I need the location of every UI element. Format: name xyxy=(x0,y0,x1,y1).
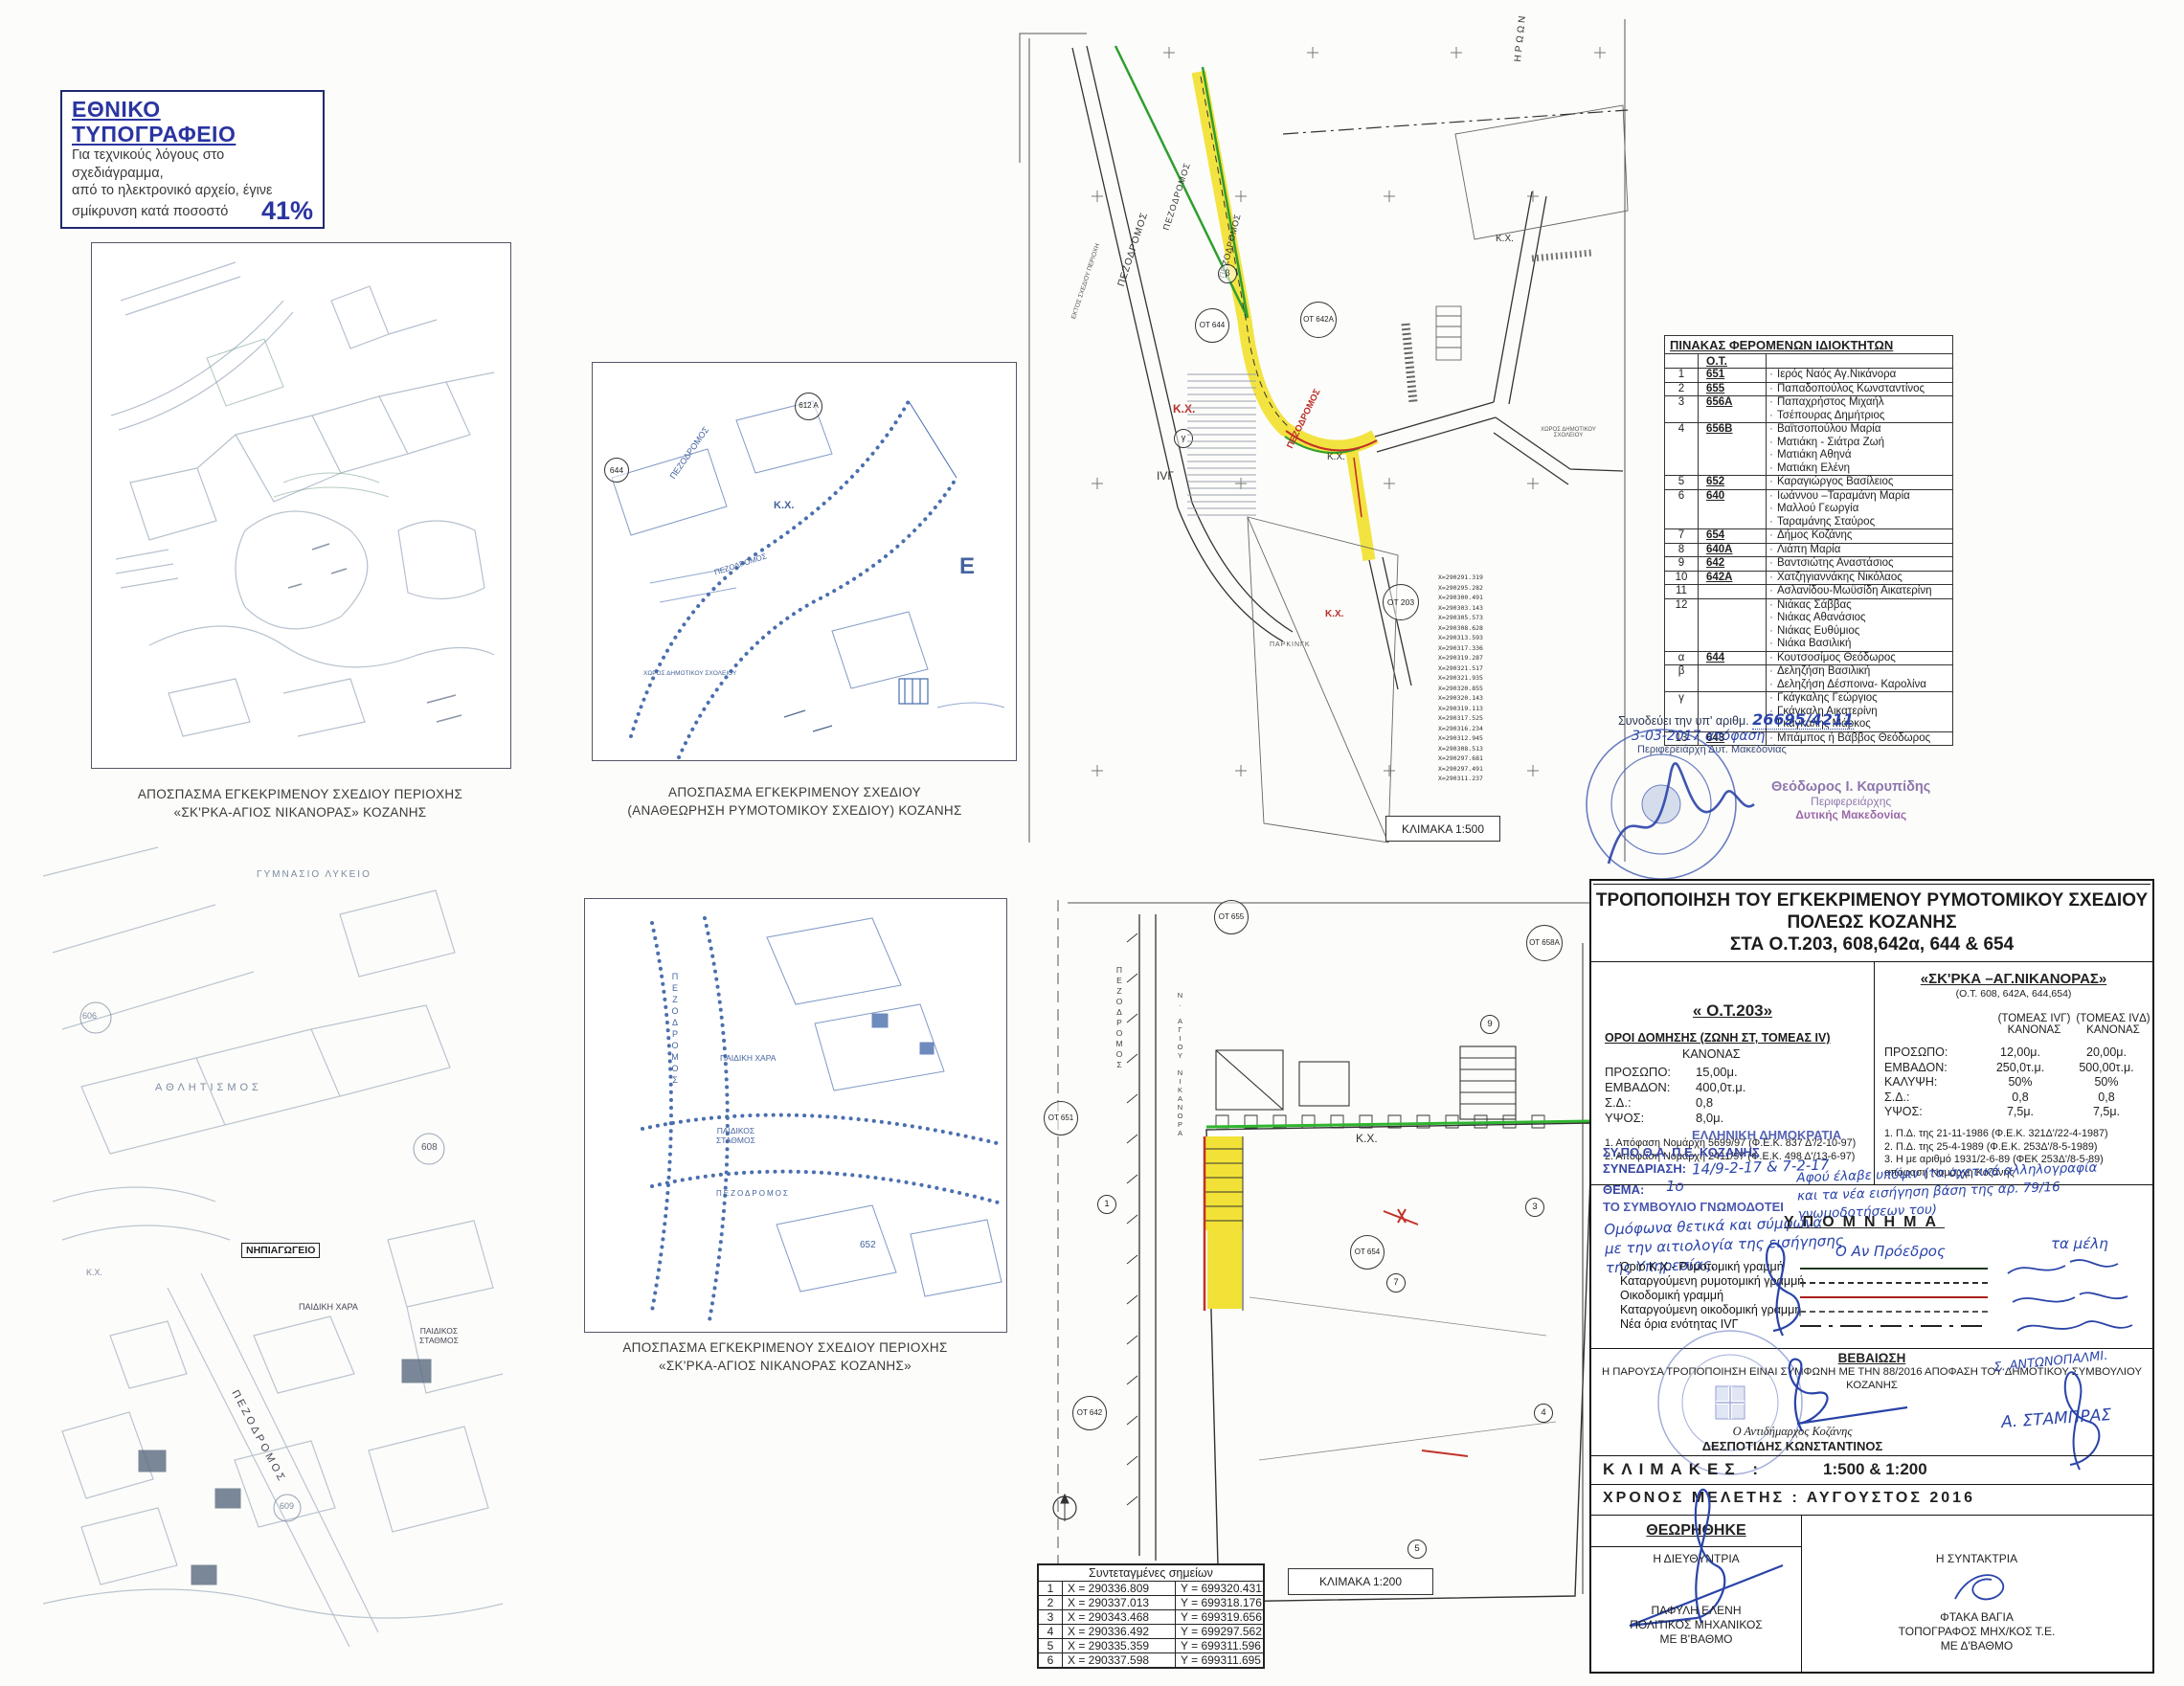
point-label-1: 1 xyxy=(1097,1195,1116,1214)
term-value-ivg: 50% xyxy=(1972,1075,2068,1090)
governor-signature xyxy=(1609,763,1754,864)
coord-x-value: X = 290337.598 xyxy=(1063,1653,1176,1667)
map-e-sketch xyxy=(585,899,1006,1332)
owner-row-name: Βαντσιώτης Αναστάσιος xyxy=(1767,557,1952,571)
printing-office-line3: σμίκρυνση κατά ποσοστό xyxy=(72,203,228,221)
col-ivg-a: (ΤΟΜΕΑΣ IVΓ) xyxy=(1998,1013,2071,1024)
col-ivd-b: ΚΑΝΟΝΑΣ xyxy=(2086,1024,2140,1036)
owner-row-num: γ xyxy=(1665,692,1699,706)
deputy-mayor-title: Ο Αντιδήμαρχος Κοζάνης xyxy=(1591,1425,1993,1439)
owner-row-ot xyxy=(1699,612,1767,625)
owner-row-ot: 651 xyxy=(1699,369,1767,382)
table-row: Νιάκας Ευθύμιος xyxy=(1665,625,1952,639)
survey-x-entry: X=290319.113 xyxy=(1438,704,1483,714)
point-label-7: 7 xyxy=(1386,1273,1406,1293)
coord-x-value: X = 290336.492 xyxy=(1063,1625,1176,1638)
owner-row-ot: 655 xyxy=(1699,383,1767,396)
table-row: 3 X = 290343.468 Y = 699319.656 xyxy=(1039,1609,1263,1624)
ot203-heading: « Ο.Τ.203» xyxy=(1591,1001,1874,1021)
owners-table-title: ΠΙΝΑΚΑΣ ΦΕΡΟΜΕΝΩΝ ΙΔΙΟΚΤΗΤΩΝ xyxy=(1665,336,1952,353)
block-label-644: 644 xyxy=(604,458,629,483)
survey-x-entry: X=290297.681 xyxy=(1438,753,1483,764)
title-line1: ΤΡΟΠΟΠΟΙΗΣΗ ΤΟΥ ΕΓΚΕΚΡΙΜΕΝΟΥ ΡΥΜΟΤΟΜΙΚΟΥ… xyxy=(1591,890,2152,911)
term-value-ivd: 0,8 xyxy=(2068,1090,2145,1106)
table-row: 4 656Β Βαϊτσοπούλου Μαρία xyxy=(1665,422,1952,437)
caption-map-e: ΑΠΟΣΠΑΣΜΑ ΕΓΚΕΚΡΙΜΕΝΟΥ ΣΧΕΔΙΟΥ ΠΕΡΙΟΧΗΣ … xyxy=(555,1338,1015,1375)
scale-box-1200: ΚΛΙΜΑΚΑ 1:200 xyxy=(1288,1568,1433,1595)
table-row: γ Γκάγκαλης Γεώργιος xyxy=(1665,691,1952,706)
table-row: Νιάκας Αθανάσιος xyxy=(1665,612,1952,625)
owner-row-name: Ταραμάνης Σταύρος xyxy=(1767,516,1952,529)
owner-row-ot xyxy=(1699,692,1767,706)
terms-row: ΚΑΛΥΨΗ: 50% 50% xyxy=(1884,1075,2150,1090)
coord-y-value: Y = 699297.562 xyxy=(1176,1625,1263,1638)
map-excerpt-e xyxy=(584,898,1007,1333)
ot642a-text: ΟΤ 642Α xyxy=(1303,316,1334,324)
point-label-9: 9 xyxy=(1480,1015,1499,1034)
right-note-line: 2. Π.Δ. της 25-4-1989 (Φ.Ε.Κ. 253Δ'/8-5-… xyxy=(1884,1141,2145,1155)
owner-row-name: Ματιάκη Αθηνά xyxy=(1767,449,1952,462)
map-survey-1500 xyxy=(996,19,1647,862)
table-row: α 644 Κουτσοσίμος Θεόδωρος xyxy=(1665,651,1952,665)
ot203-heading-text: « Ο.Τ.203» xyxy=(1693,1001,1772,1020)
table-row: β Δεληζήση Βασιλική xyxy=(1665,664,1952,679)
kx-label-red: Κ.Χ. xyxy=(1325,609,1343,619)
table-row: 2 X = 290337.013 Y = 699318.176 xyxy=(1039,1595,1263,1609)
term-key: ΠΡΟΣΩΠΟ: xyxy=(1884,1045,1972,1061)
map-b-sketch xyxy=(593,363,1016,760)
governor-stamp-text: Θεόδωρος Ι. Καρυπίδης Περιφερειάρχης Δυτ… xyxy=(1771,779,1930,821)
survey-x-entry: X=290319.287 xyxy=(1438,653,1483,663)
sector-e-label: Ε xyxy=(959,553,975,580)
map-excerpt-b xyxy=(592,362,1017,761)
regional-round-stamp xyxy=(1580,720,1762,888)
legend-line-sample xyxy=(1800,1268,1988,1272)
owner-row-ot xyxy=(1699,625,1767,639)
owner-row-num xyxy=(1665,449,1699,462)
owner-row-ot: 642Α xyxy=(1699,572,1767,585)
gym-label: ΓΥΜΝΑΣΙΟ ΛΥΚΕΙΟ xyxy=(257,869,372,880)
table-row: 2 655 Παπαδοπούλος Κωνσταντίνος xyxy=(1665,382,1952,396)
members-signatures xyxy=(1998,1254,2142,1345)
map-a-sketch xyxy=(92,243,510,768)
point-3-text: 3 xyxy=(1532,1203,1537,1212)
street-label-agiou-nikanora: Ν. ΑΓΙΟΥ ΝΙΚΑΝΟΡΑ xyxy=(1176,991,1184,1168)
member-signature-squiggle xyxy=(2037,1364,2123,1474)
col-ivd-a: (ΤΟΜΕΑΣ IVΔ) xyxy=(2076,1013,2150,1024)
survey-x-entry: X=290308.628 xyxy=(1438,623,1483,634)
survey-x-entry: X=290320.143 xyxy=(1438,693,1483,704)
coordinates-table-body: 1 X = 290336.809 Y = 699320.431 2 X = 29… xyxy=(1039,1582,1263,1667)
point-4-text: 4 xyxy=(1541,1408,1545,1418)
owners-table-header: Ο.Τ. xyxy=(1665,353,1952,368)
owner-row-name: Δεληζήση Βασιλική xyxy=(1767,665,1952,679)
term-value-ivd: 50% xyxy=(2068,1075,2145,1090)
owner-row-name: Δεληζήση Δέσποινα- Καρολίνα xyxy=(1767,679,1952,692)
point-label-5: 5 xyxy=(1407,1540,1427,1559)
owner-row-num xyxy=(1665,516,1699,529)
owner-row-num: 9 xyxy=(1665,557,1699,571)
kx-label: Κ.Χ. xyxy=(1327,452,1345,462)
legend-line-sample xyxy=(1800,1311,1988,1315)
term-value: 400,0τ.μ. xyxy=(1696,1080,1745,1095)
owner-row-ot xyxy=(1699,585,1767,598)
author-title2: ΜΕ Δ'ΒΑΘΜΟ xyxy=(1801,1639,2152,1652)
chairman-handwritten: Ο Αν Πρόεδρος xyxy=(1835,1243,1946,1260)
owner-row-name: Γκάγκαλης Γεώργιος xyxy=(1767,692,1952,706)
street-label-pezodromos-vertical: ΠΕΖΟΔΡΟΜΟΣ xyxy=(670,972,680,1139)
coordinates-table-title: Συντεταγμένες σημείων xyxy=(1039,1565,1263,1582)
daycare-line1: ΠΑΙΔΙΚΟΣ xyxy=(419,1326,459,1336)
author-name: ΦΤΑΚΑ ΒΑΓΙΑ xyxy=(1801,1610,2152,1624)
kx-label-d: Κ.Χ. xyxy=(86,1268,102,1277)
owner-row-name: Χατζηγιαννάκης Νικόλαος xyxy=(1767,572,1952,585)
illegible-coordinate-list xyxy=(1187,373,1256,517)
map-survey-1200 xyxy=(1010,886,1609,1642)
term-key: ΚΑΛΥΨΗ: xyxy=(1884,1075,1972,1090)
table-row: 4 X = 290336.492 Y = 699297.562 xyxy=(1039,1624,1263,1638)
block-label-ot658a: ΟΤ 658Α xyxy=(1526,925,1563,961)
point-9-text: 9 xyxy=(1487,1020,1492,1029)
survey-x-entry: X=290312.945 xyxy=(1438,733,1483,744)
governor-region: Δυτικής Μακεδονίας xyxy=(1771,808,1930,821)
right-terms-rows: ΠΡΟΣΩΠΟ: 12,00μ. 20,00μ. ΕΜΒΑΔΟΝ: 250,0τ… xyxy=(1884,1045,2150,1120)
beta-text: β xyxy=(1225,269,1229,278)
ot644-text: ΟΤ 644 xyxy=(1200,322,1226,329)
owners-header-name xyxy=(1767,354,1952,368)
reduction-percent: 41% xyxy=(261,200,313,221)
scales-label: ΚΛΙΜΑΚΕΣ : xyxy=(1603,1460,1765,1479)
owner-row-num: 11 xyxy=(1665,585,1699,598)
daycare-label: ΠΑΙΔΙΚΟΣ ΣΤΑΘΜΟΣ xyxy=(419,1326,459,1345)
terms-row: Σ.Δ.: 0,8 xyxy=(1605,1095,1854,1111)
term-key: Σ.Δ.: xyxy=(1605,1095,1696,1111)
survey-x-entry: X=290317.336 xyxy=(1438,643,1483,654)
title-line2: ΠΟΛΕΩΣ ΚΟΖΑΝΗΣ xyxy=(1591,912,2152,933)
table-row: 12 Νιάκας Σάββας xyxy=(1665,598,1952,613)
table-row: Ματιάκη Ελένη xyxy=(1665,462,1952,476)
survey-x-entry: X=290303.143 xyxy=(1438,603,1483,614)
theme-label: ΘΕΜΑ: xyxy=(1603,1182,1644,1197)
table-row: 5 652 Καραγιώργος Βασίλειος xyxy=(1665,475,1952,489)
owner-row-name: Κουτσοσίμος Θεόδωρος xyxy=(1767,652,1952,665)
playground-label-e: ΠΑΙΔΙΚΗ ΧΑΡΑ xyxy=(720,1053,776,1063)
left-terms-rows: ΠΡΟΣΩΠΟ: 15,00μ. ΕΜΒΑΔΟΝ: 400,0τ.μ. Σ.Δ.… xyxy=(1605,1065,1854,1126)
owner-row-ot xyxy=(1699,665,1767,679)
terms-row: ΠΡΟΣΩΠΟ: 12,00μ. 20,00μ. xyxy=(1884,1045,2150,1061)
kx-label: Κ.Χ. xyxy=(1496,234,1514,244)
coord-y-value: Y = 699311.596 xyxy=(1176,1639,1263,1652)
daycare-line2: ΣΤΑΘΜΟΣ xyxy=(419,1336,459,1345)
point-5-text: 5 xyxy=(1414,1544,1419,1554)
survey-x-entry: X=290321.517 xyxy=(1438,663,1483,674)
owner-row-ot: 656Β xyxy=(1699,423,1767,437)
title-block-double-border xyxy=(1593,884,2150,885)
survey-x-entry: X=290317.525 xyxy=(1438,713,1483,724)
school-area-line2: ΔΗΜΟΤΙΚΟΥ ΣΧΟΛΕΙΟΥ xyxy=(666,670,736,677)
terms-row: ΥΨΟΣ: 8,0μ. xyxy=(1605,1111,1854,1126)
coord-y-value: Y = 699320.431 xyxy=(1176,1582,1263,1595)
owner-row-ot xyxy=(1699,599,1767,613)
coord-y-value: Y = 699311.695 xyxy=(1176,1653,1263,1667)
table-row: Νιάκα Βασιλική xyxy=(1665,638,1952,651)
owner-row-name: Νιάκα Βασιλική xyxy=(1767,638,1952,651)
skrka-subheading: (Ο.Τ. 608, 642Α, 644,654) xyxy=(1875,988,2152,1000)
table-row: Ταραμάνης Σταύρος xyxy=(1665,516,1952,529)
caption-map-e-line1: ΑΠΟΣΠΑΣΜΑ ΕΓΚΕΚΡΙΜΕΝΟΥ ΣΧΕΔΙΟΥ ΠΕΡΙΟΧΗΣ xyxy=(555,1338,1015,1357)
term-value-ivd: 20,00μ. xyxy=(2068,1045,2145,1061)
block-609-label: 609 xyxy=(280,1501,294,1511)
owner-row-ot: 642 xyxy=(1699,557,1767,571)
caption-map-b: ΑΠΟΣΠΑΣΜΑ ΕΓΚΕΚΡΙΜΕΝΟΥ ΣΧΕΔΙΟΥ (ΑΝΑΘΕΩΡΗ… xyxy=(570,783,1020,820)
block-652-label: 652 xyxy=(860,1240,876,1250)
term-value-ivd: 500,00τ.μ. xyxy=(2068,1061,2145,1076)
owner-row-ot xyxy=(1699,449,1767,462)
owner-row-ot xyxy=(1699,638,1767,651)
table-row: Τσέπουρας Δημήτριος xyxy=(1665,410,1952,423)
block-644-text: 644 xyxy=(610,466,623,475)
coord-point-number: 4 xyxy=(1039,1625,1063,1638)
block-612a-text: 612 Α xyxy=(799,402,818,410)
street-label-pezodromos: ΠΕΖΟΔΡΟΜΟΣ xyxy=(716,1189,790,1198)
owner-row-num xyxy=(1665,625,1699,639)
approval-number-handwritten: 26695/4211 xyxy=(1752,710,1854,730)
owner-row-num: 6 xyxy=(1665,490,1699,504)
owner-row-ot xyxy=(1699,437,1767,450)
block-label-ot651: ΟΤ 651 xyxy=(1044,1101,1078,1135)
table-row: 10 642Α Χατζηγιαννάκης Νικόλαος xyxy=(1665,571,1952,585)
block-label-ot642a: ΟΤ 642Α xyxy=(1300,302,1337,338)
owner-row-num xyxy=(1665,612,1699,625)
owner-row-num: 8 xyxy=(1665,544,1699,557)
block-606-label: 606 xyxy=(82,1011,97,1021)
right-note-line: 1. Π.Δ. της 21-11-1986 (Φ.Ε.Κ. 321Δ'/22-… xyxy=(1884,1128,2145,1141)
scales-value: 1:500 & 1:200 xyxy=(1823,1460,1927,1479)
term-value-ivd: 7,5μ. xyxy=(2068,1105,2145,1120)
council-opinion-stamp: ΤΟ ΣΥΜΒΟΥΛΙΟ ΓΝΩΜΟΔΟΤΕΙ xyxy=(1603,1200,1784,1214)
owner-row-num: α xyxy=(1665,652,1699,665)
owner-row-name: Νιάκας Αθανάσιος xyxy=(1767,612,1952,625)
ot651-text: ΟΤ 651 xyxy=(1048,1114,1074,1122)
terms-row: ΕΜΒΑΔΟΝ: 400,0τ.μ. xyxy=(1605,1080,1854,1095)
owner-row-name: Τσέπουρας Δημήτριος xyxy=(1767,410,1952,423)
owner-row-ot xyxy=(1699,503,1767,516)
caption-map-a-line1: ΑΠΟΣΠΑΣΜΑ ΕΓΚΕΚΡΙΜΕΝΟΥ ΣΧΕΔΙΟΥ ΠΕΡΙΟΧΗΣ xyxy=(91,785,509,803)
skrka-heading-text: «ΣΚ'ΡΚΑ –ΑΓ.ΝΙΚΑΝΟΡΑΣ» xyxy=(1921,971,2107,987)
point-1-text: 1 xyxy=(1104,1200,1109,1209)
school-area-c-line2: ΔΗΜΟΤΙΚΟΥ ΣΧΟΛΕΙΟΥ xyxy=(1554,427,1596,438)
col-ivg-b: ΚΑΝΟΝΑΣ xyxy=(2008,1024,2061,1036)
term-value: 15,00μ. xyxy=(1696,1065,1738,1080)
owner-row-ot xyxy=(1699,410,1767,423)
divider xyxy=(1591,961,2152,962)
owner-row-name: Νιάκας Σάββας xyxy=(1767,599,1952,613)
director-name: ΠΑΦΥΛΗ ΕΛΕΝΗ xyxy=(1591,1604,1801,1617)
table-row: 6 640 Ιωάννου –Ταραμάνη Μαρία xyxy=(1665,489,1952,504)
caption-map-a: ΑΠΟΣΠΑΣΜΑ ΕΓΚΕΚΡΙΜΕΝΟΥ ΣΧΕΔΙΟΥ ΠΕΡΙΟΧΗΣ … xyxy=(91,785,509,821)
owner-row-num: 7 xyxy=(1665,529,1699,543)
table-row: Δεληζήση Δέσποινα- Καρολίνα xyxy=(1665,679,1952,692)
terms-row: ΕΜΒΑΔΟΝ: 250,0τ.μ. 500,00τ.μ. xyxy=(1884,1061,2150,1076)
table-row: 9 642 Βαντσιώτης Αναστάσιος xyxy=(1665,556,1952,571)
legend-title-text: ΥΠΟΜΝΗΜΑ xyxy=(1784,1214,1945,1230)
survey-x-entry: X=290295.282 xyxy=(1438,583,1483,594)
owner-row-ot: 640 xyxy=(1699,490,1767,504)
block-label-ot203: ΟΤ 203 xyxy=(1383,584,1419,620)
point-label-3: 3 xyxy=(1525,1198,1544,1217)
owner-row-ot: 640Α xyxy=(1699,544,1767,557)
owner-row-num: 12 xyxy=(1665,599,1699,613)
owner-row-name: Ασλανίδου-Μωϋσίδη Αικατερίνη xyxy=(1767,585,1952,598)
parking-label: ΠΑΡΚΙΝΓΚ xyxy=(1270,641,1311,648)
coord-point-number: 3 xyxy=(1039,1610,1063,1624)
scale-1500-text: ΚΛΙΜΑΚΑ 1:500 xyxy=(1402,822,1484,836)
caption-map-a-line2: «ΣΚ'ΡΚΑ-ΑΓΙΟΣ ΝΙΚΑΝΟΡΑΣ» ΚΟΖΑΝΗΣ xyxy=(91,803,509,821)
table-row: 5 X = 290335.359 Y = 699311.596 xyxy=(1039,1638,1263,1652)
term-value: 0,8 xyxy=(1696,1095,1713,1111)
table-row: 11 Ασλανίδου-Μωϋσίδη Αικατερίνη xyxy=(1665,584,1952,598)
daycare-e-line1: ΠΑΙΔΙΚΟΣ xyxy=(716,1126,755,1135)
survey-x-entry: X=290320.855 xyxy=(1438,684,1483,694)
owner-row-num: β xyxy=(1665,665,1699,679)
coord-x-value: X = 290336.809 xyxy=(1063,1582,1176,1595)
point-7-text: 7 xyxy=(1393,1278,1398,1288)
survey-x-entry: X=290313.593 xyxy=(1438,633,1483,643)
sports-label: ΑΘΛΗΤΙΣΜΟΣ xyxy=(155,1082,262,1093)
terms-row: ΠΡΟΣΩΠΟ: 15,00μ. xyxy=(1605,1065,1854,1080)
survey-x-entry: X=290300.491 xyxy=(1438,593,1483,603)
governor-role: Περιφερειάρχης xyxy=(1771,795,1930,808)
table-row: 1 651 Ιερός Ναός Αγ.Νικάνορα xyxy=(1665,368,1952,382)
survey-x-entry: X=290297.491 xyxy=(1438,764,1483,775)
table-row: 8 640Α Λιάπη Μαρία xyxy=(1665,543,1952,557)
owner-row-num: 1 xyxy=(1665,369,1699,382)
left-kanonas: ΚΑΝΟΝΑΣ xyxy=(1682,1047,1741,1061)
legend-line-sample xyxy=(1800,1282,1988,1287)
col-ivg-header: (ΤΟΜΕΑΣ IVΓ)ΚΑΝΟΝΑΣ xyxy=(1993,1013,2075,1036)
table-row: 1 X = 290336.809 Y = 699320.431 xyxy=(1039,1582,1263,1595)
survey-x-entry: X=290311.237 xyxy=(1438,774,1483,784)
block-label-ot655: ΟΤ 655 xyxy=(1214,900,1249,934)
table-row: Ματιάκη - Σιάτρα Ζωή xyxy=(1665,437,1952,450)
owner-row-ot: 644 xyxy=(1699,652,1767,665)
coord-x-value: X = 290337.013 xyxy=(1063,1596,1176,1609)
owner-row-num: 3 xyxy=(1665,396,1699,410)
survey-x-entry: X=290305.573 xyxy=(1438,613,1483,623)
ot655-text: ΟΤ 655 xyxy=(1219,913,1245,921)
school-area-line1: ΧΩΡΟΣ xyxy=(643,670,665,677)
sypotha-agency: ΣΥ.ΠΟ.Θ.Α. Π.Ε. ΚΟΖΑΝΗΣ xyxy=(1603,1145,1760,1159)
owner-row-num xyxy=(1665,437,1699,450)
survey-x-entry: X=290291.319 xyxy=(1438,573,1483,583)
block-label-ot644: ΟΤ 644 xyxy=(1195,308,1229,343)
term-key: ΕΜΒΑΔΟΝ: xyxy=(1605,1080,1696,1095)
approval-note-area: Συνοδεύει την υπ' αριθμ. 26695/4211 3-03… xyxy=(1618,710,2001,883)
owner-row-ot: 656Α xyxy=(1699,396,1767,410)
printing-office-title: ΕΘΝΙΚΟ ΤΥΠΟΓΡΑΦΕΙΟ xyxy=(72,97,313,146)
owner-row-num xyxy=(1665,679,1699,692)
deputy-mayor-name: ΔΕΣΠΟΤΙΔΗΣ ΚΩΝΣΤΑΝΤΙΝΟΣ xyxy=(1591,1439,1993,1453)
playground-label: ΠΑΙΔΙΚΗ ΧΑΡΑ xyxy=(299,1302,358,1312)
table-row: 3 656Α Παπαχρήστος Μιχαήλ xyxy=(1665,395,1952,410)
term-value-ivg: 7,5μ. xyxy=(1972,1105,2068,1120)
owner-row-num: 10 xyxy=(1665,572,1699,585)
divider xyxy=(1591,1455,2152,1456)
owner-row-name: Παπαχρήστος Μιχαήλ xyxy=(1767,396,1952,410)
scale-1200-text: ΚΛΙΜΑΚΑ 1:200 xyxy=(1319,1575,1402,1588)
terms-row: ΥΨΟΣ: 7,5μ. 7,5μ. xyxy=(1884,1105,2150,1120)
printing-office-line1: Για τεχνικούς λόγους στο σχεδιάγραμμα, xyxy=(72,146,313,182)
sector-ivg-label: IVΓ xyxy=(1157,469,1174,483)
owner-row-name: Λιάπη Μαρία xyxy=(1767,544,1952,557)
street-label-pezodromos-vertical-f: ΠΕΖΟΔΡΟΜΟΣ xyxy=(1115,965,1124,1123)
governor-name: Θεόδωρος Ι. Καρυπίδης xyxy=(1771,779,1930,795)
coord-x-value: X = 290343.468 xyxy=(1063,1610,1176,1624)
coord-point-number: 2 xyxy=(1039,1596,1063,1609)
terms-row: Σ.Δ.: 0,8 0,8 xyxy=(1884,1090,2150,1106)
point-label-4: 4 xyxy=(1534,1404,1553,1423)
gamma-text: γ xyxy=(1182,434,1186,442)
block-label-612a: 612 Α xyxy=(795,393,822,420)
printing-office-stamp: ΕΘΝΙΚΟ ΤΥΠΟΓΡΑΦΕΙΟ Για τεχνικούς λόγους … xyxy=(60,90,325,229)
ot654-text: ΟΤ 654 xyxy=(1355,1248,1381,1256)
school-area-label-c: ΧΩΡΟΣ ΔΗΜΟΤΙΚΟΥ ΣΧΟΛΕΙΟΥ xyxy=(1538,427,1599,438)
legend-line-sample xyxy=(1800,1296,1988,1301)
theme-value-handwritten: 1ο xyxy=(1666,1178,1684,1195)
block-label-ot642: ΟΤ 642 xyxy=(1072,1396,1107,1430)
owner-row-name: Ματιάκη Ελένη xyxy=(1767,462,1952,476)
title-block: ΤΡΟΠΟΠΟΙΗΣΗ ΤΟΥ ΕΓΚΕΚΡΙΜΕΝΟΥ ΡΥΜΟΤΟΜΙΚΟΥ… xyxy=(1589,879,2154,1674)
coord-y-value: Y = 699318.176 xyxy=(1176,1596,1263,1609)
table-row: 7 654 Δήμος Κοζάνης xyxy=(1665,528,1952,543)
term-key: ΥΨΟΣ: xyxy=(1605,1111,1696,1126)
owner-row-name: Ιωάννου –Ταραμάνη Μαρία xyxy=(1767,490,1952,504)
hellenic-republic-stamp: ΕΛΛΗΝΙΚΗ ΔΗΜΟΚΡΑΤΙΑ xyxy=(1692,1128,1841,1142)
survey-x-entry: X=290321.935 xyxy=(1438,673,1483,684)
legend-title: ΥΠΟΜΝΗΜΑ xyxy=(1735,1214,1993,1231)
owner-row-num: 2 xyxy=(1665,383,1699,396)
owner-row-name: Παπαδοπούλος Κωνσταντίνος xyxy=(1767,383,1952,396)
parcel-label-beta: β xyxy=(1218,264,1237,283)
owner-row-name: Καραγιώργος Βασίλειος xyxy=(1767,476,1952,489)
table-row: Ματιάκη Αθηνά xyxy=(1665,449,1952,462)
owner-row-ot xyxy=(1699,516,1767,529)
owner-row-num: 4 xyxy=(1665,423,1699,437)
owners-table: ΠΙΝΑΚΑΣ ΦΕΡΟΜΕΝΩΝ ΙΔΙΟΚΤΗΤΩΝ Ο.Τ. 1 651 … xyxy=(1664,335,1953,746)
term-value: 8,0μ. xyxy=(1696,1111,1723,1126)
owner-row-num: 5 xyxy=(1665,476,1699,489)
survey-x-coordinate-list: X=290291.319X=290295.282X=290300.491X=29… xyxy=(1438,573,1483,784)
term-key: Σ.Δ.: xyxy=(1884,1090,1972,1106)
director-title1: ΠΟΛΙΤΙΚΟΣ ΜΗΧΑΝΙΚΟΣ xyxy=(1591,1618,1801,1631)
owner-row-ot xyxy=(1699,462,1767,476)
term-key: ΥΨΟΣ: xyxy=(1884,1105,1972,1120)
title-line3: ΣΤΑ Ο.Τ.203, 608,642α, 644 & 654 xyxy=(1591,934,2152,955)
survey-x-entry: X=290308.513 xyxy=(1438,744,1483,754)
owner-row-ot xyxy=(1699,679,1767,692)
ot658a-text: ΟΤ 658Α xyxy=(1529,939,1560,947)
kindergarten-text: ΝΗΠΙΑΓΩΓΕΙΟ xyxy=(246,1245,315,1256)
kx-label-f: Κ.Χ. xyxy=(1356,1132,1378,1145)
caption-map-e-line2: «ΣΚ'ΡΚΑ-ΑΓΙΟΣ ΝΙΚΑΝΟΡΑΣ ΚΟΖΑΝΗΣ» xyxy=(555,1357,1015,1375)
school-area-label: ΧΩΡΟΣ ΔΗΜΟΤΙΚΟΥ ΣΧΟΛΕΙΟΥ xyxy=(643,670,736,677)
author-role: Η ΣΥΝΤΑΚΤΡΙΑ xyxy=(1801,1552,2152,1565)
legend-line-sample xyxy=(1800,1325,1988,1327)
coord-x-value: X = 290335.359 xyxy=(1063,1639,1176,1652)
owner-row-num xyxy=(1665,503,1699,516)
owner-row-name: Μαλλού Γεωργία xyxy=(1767,503,1952,516)
table-row: 6 X = 290337.598 Y = 699311.695 xyxy=(1039,1652,1263,1667)
